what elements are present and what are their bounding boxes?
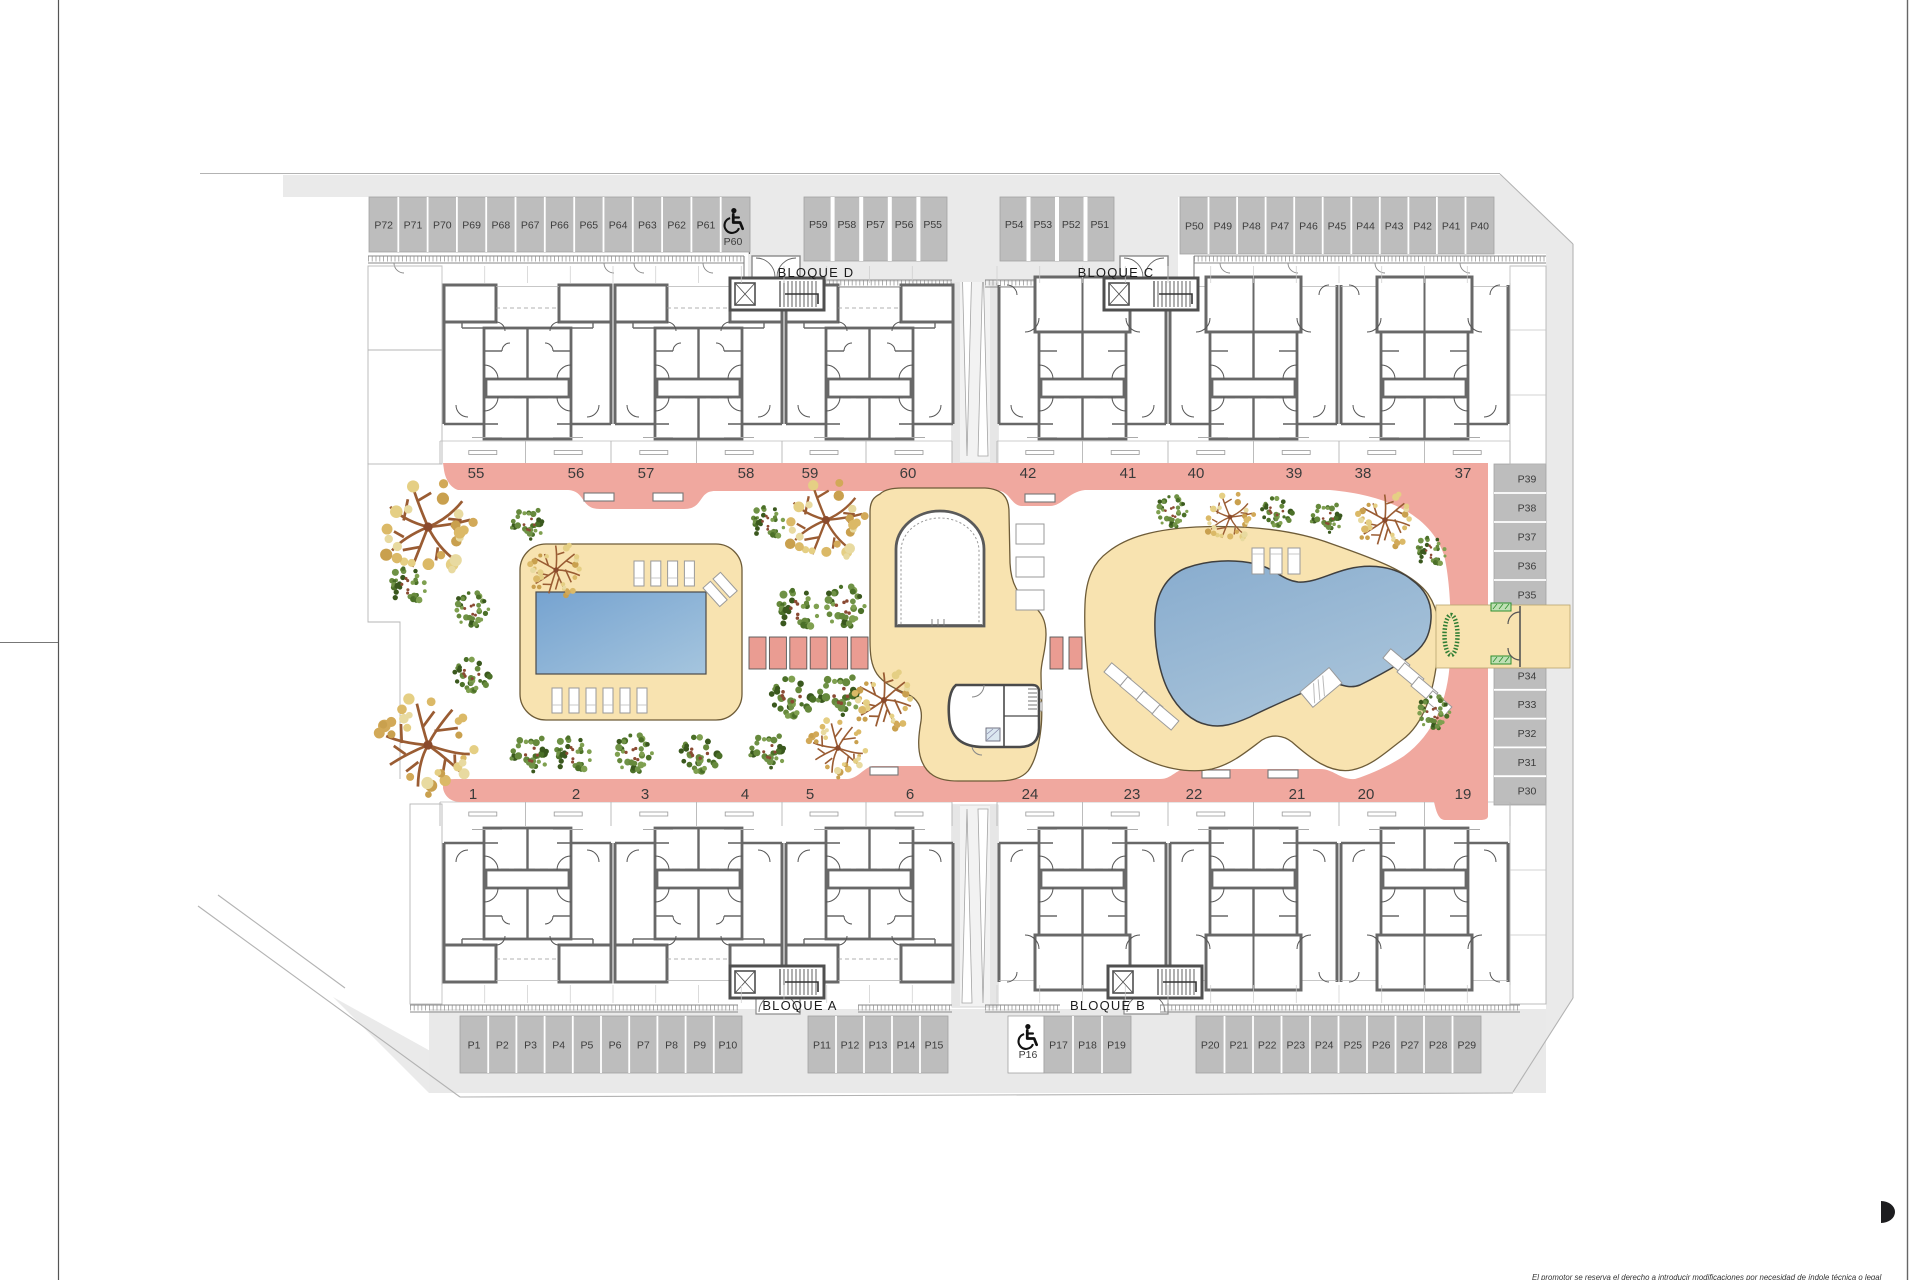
svg-text:P66: P66 [550, 220, 569, 232]
svg-text:39: 39 [1286, 465, 1303, 482]
svg-text:P71: P71 [404, 220, 423, 232]
svg-text:P65: P65 [579, 220, 598, 232]
svg-text:P16: P16 [1019, 1049, 1038, 1061]
svg-text:P26: P26 [1372, 1040, 1391, 1052]
svg-text:P6: P6 [609, 1040, 622, 1052]
svg-text:P59: P59 [809, 219, 828, 231]
svg-text:P72: P72 [374, 220, 393, 232]
svg-text:P37: P37 [1518, 532, 1537, 544]
svg-text:P35: P35 [1518, 590, 1537, 602]
svg-text:P50: P50 [1185, 221, 1204, 233]
svg-text:P3: P3 [524, 1040, 537, 1052]
svg-text:P18: P18 [1078, 1040, 1097, 1052]
svg-text:P17: P17 [1049, 1040, 1068, 1052]
svg-text:P12: P12 [841, 1040, 860, 1052]
svg-text:El promotor se reserva el dere: El promotor se reserva el derecho a intr… [1532, 1273, 1882, 1280]
svg-text:P21: P21 [1229, 1040, 1248, 1052]
svg-text:P7: P7 [637, 1040, 650, 1052]
svg-text:38: 38 [1355, 465, 1372, 482]
svg-text:P70: P70 [433, 220, 452, 232]
svg-text:P31: P31 [1518, 757, 1537, 769]
svg-text:1: 1 [469, 786, 477, 803]
svg-text:P68: P68 [492, 220, 511, 232]
svg-text:P22: P22 [1258, 1040, 1277, 1052]
svg-text:P63: P63 [638, 220, 657, 232]
svg-text:55: 55 [468, 465, 485, 482]
svg-text:P40: P40 [1470, 221, 1489, 233]
svg-text:P36: P36 [1518, 561, 1537, 573]
svg-text:19: 19 [1455, 786, 1472, 803]
svg-text:P55: P55 [923, 219, 942, 231]
svg-text:57: 57 [638, 465, 655, 482]
svg-text:P69: P69 [462, 220, 481, 232]
svg-text:P46: P46 [1299, 221, 1318, 233]
svg-text:P64: P64 [609, 220, 628, 232]
svg-text:41: 41 [1120, 465, 1137, 482]
svg-text:P44: P44 [1356, 221, 1375, 233]
svg-text:21: 21 [1289, 786, 1306, 803]
svg-text:BLOQUE C: BLOQUE C [1078, 265, 1155, 280]
svg-text:P56: P56 [895, 219, 914, 231]
svg-text:P61: P61 [697, 220, 716, 232]
svg-text:P13: P13 [869, 1040, 888, 1052]
svg-text:P67: P67 [521, 220, 540, 232]
svg-text:P34: P34 [1518, 670, 1537, 682]
svg-text:P19: P19 [1107, 1040, 1126, 1052]
svg-text:P29: P29 [1457, 1040, 1476, 1052]
svg-text:P14: P14 [897, 1040, 916, 1052]
svg-text:42: 42 [1020, 465, 1037, 482]
svg-text:P51: P51 [1090, 219, 1109, 231]
svg-text:P39: P39 [1518, 474, 1537, 486]
svg-text:4: 4 [741, 786, 749, 803]
svg-text:P54: P54 [1005, 219, 1024, 231]
svg-text:20: 20 [1358, 786, 1375, 803]
svg-text:56: 56 [568, 465, 585, 482]
svg-text:P20: P20 [1201, 1040, 1220, 1052]
svg-text:P48: P48 [1242, 221, 1261, 233]
svg-text:P49: P49 [1213, 221, 1232, 233]
svg-text:23: 23 [1124, 786, 1141, 803]
svg-text:24: 24 [1022, 786, 1039, 803]
svg-text:22: 22 [1186, 786, 1203, 803]
svg-text:P42: P42 [1413, 221, 1432, 233]
svg-text:P10: P10 [719, 1040, 738, 1052]
svg-text:P1: P1 [468, 1040, 481, 1052]
svg-text:37: 37 [1455, 465, 1472, 482]
svg-text:P53: P53 [1033, 219, 1052, 231]
svg-text:60: 60 [900, 465, 917, 482]
svg-text:5: 5 [806, 786, 814, 803]
svg-text:P24: P24 [1315, 1040, 1334, 1052]
svg-text:P28: P28 [1429, 1040, 1448, 1052]
svg-text:P62: P62 [667, 220, 686, 232]
svg-text:59: 59 [802, 465, 819, 482]
svg-text:P11: P11 [813, 1040, 831, 1052]
svg-text:P4: P4 [552, 1040, 565, 1052]
svg-text:P58: P58 [838, 219, 857, 231]
svg-text:3: 3 [641, 786, 649, 803]
svg-text:2: 2 [572, 786, 580, 803]
svg-text:P52: P52 [1062, 219, 1081, 231]
svg-text:BLOQUE B: BLOQUE B [1070, 998, 1146, 1013]
svg-text:P8: P8 [665, 1040, 678, 1052]
svg-text:P15: P15 [925, 1040, 944, 1052]
svg-text:P2: P2 [496, 1040, 509, 1052]
svg-text:40: 40 [1188, 465, 1205, 482]
svg-text:P43: P43 [1385, 221, 1404, 233]
svg-text:BLOQUE A: BLOQUE A [762, 998, 837, 1013]
svg-text:P33: P33 [1518, 699, 1537, 711]
svg-text:P38: P38 [1518, 503, 1537, 515]
svg-text:P41: P41 [1442, 221, 1461, 233]
svg-text:P5: P5 [580, 1040, 593, 1052]
svg-text:P9: P9 [693, 1040, 706, 1052]
svg-text:P23: P23 [1286, 1040, 1305, 1052]
svg-text:P57: P57 [866, 219, 885, 231]
svg-text:P32: P32 [1518, 728, 1537, 740]
svg-text:58: 58 [738, 465, 755, 482]
svg-text:P47: P47 [1271, 221, 1290, 233]
svg-text:P25: P25 [1343, 1040, 1362, 1052]
svg-text:P30: P30 [1518, 786, 1537, 798]
svg-text:BLOQUE D: BLOQUE D [778, 265, 855, 280]
svg-text:P45: P45 [1328, 221, 1347, 233]
svg-text:P27: P27 [1400, 1040, 1419, 1052]
svg-text:6: 6 [906, 786, 914, 803]
svg-text:P60: P60 [724, 236, 743, 248]
